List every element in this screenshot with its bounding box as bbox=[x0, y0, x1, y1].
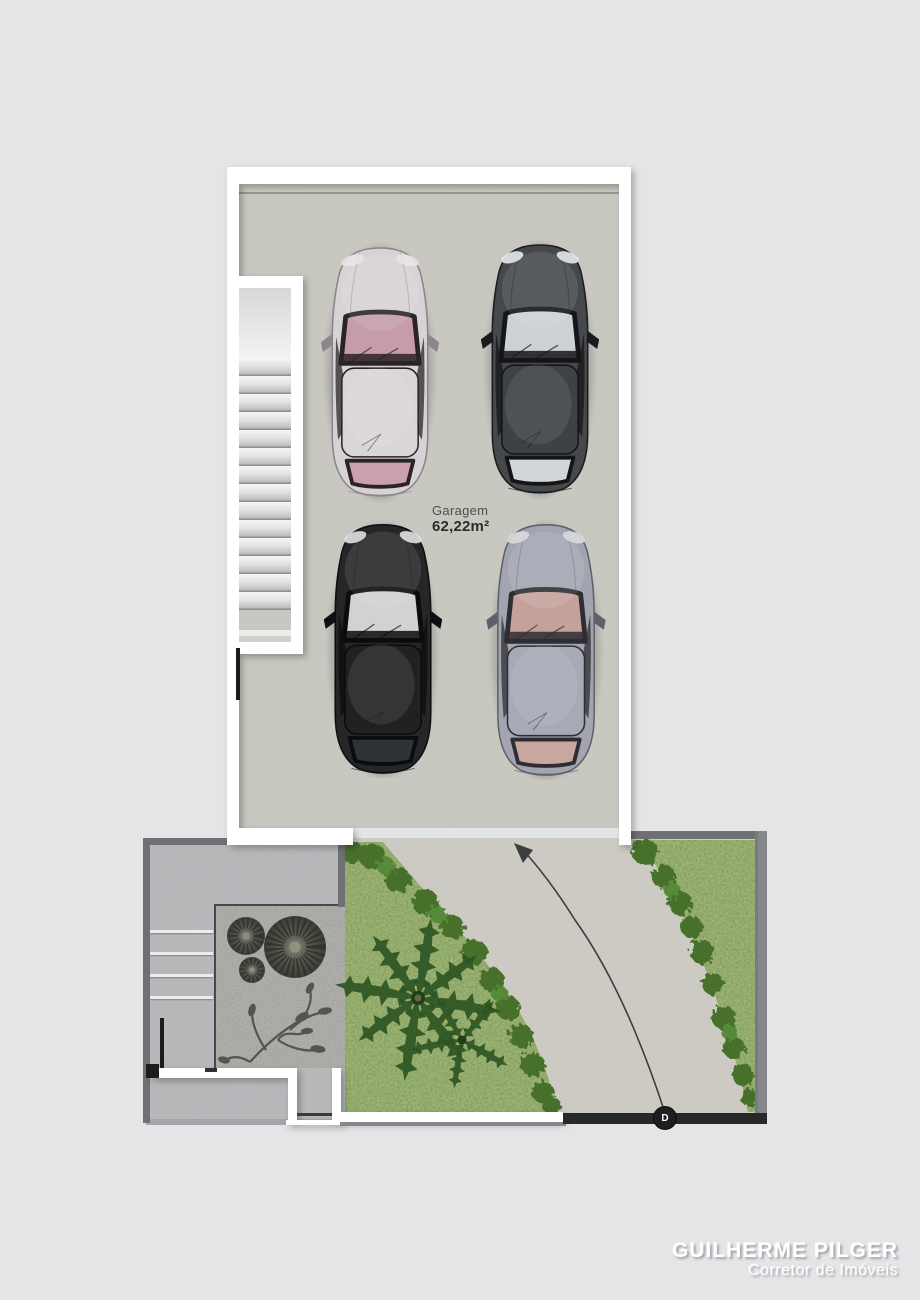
cactus-medium bbox=[227, 917, 265, 955]
cactus-large bbox=[264, 916, 326, 978]
car-black-hatchback bbox=[324, 523, 442, 777]
garage-room-name: Garagem bbox=[432, 503, 488, 518]
stair-landing-top bbox=[239, 288, 291, 358]
floor-plan-drawing: D bbox=[0, 0, 920, 1300]
gate-marker-label: D bbox=[661, 1113, 668, 1124]
car-silver-sedan bbox=[321, 246, 439, 500]
stair-treads bbox=[239, 358, 291, 610]
gate-marker: D bbox=[654, 1107, 677, 1130]
garage-area-value: 62,22m² bbox=[432, 519, 489, 535]
wall-shadow-line bbox=[340, 1122, 566, 1126]
stairs bbox=[239, 288, 291, 642]
floor-plan-page: D Garagem 62,22m² GUILHERME PILGER Corre… bbox=[0, 0, 920, 1300]
cactus-small bbox=[239, 957, 265, 983]
car-dark-coupe bbox=[481, 243, 599, 497]
garage-inner-wall-line bbox=[239, 192, 619, 194]
realtor-role: Corretor de Imóveis bbox=[672, 1263, 898, 1280]
car-gray-sedan bbox=[486, 523, 605, 779]
garage-room-label: Garagem 62,22m² bbox=[432, 504, 489, 534]
stair-landing-bottom bbox=[239, 610, 291, 630]
realtor-name: GUILHERME PILGER bbox=[672, 1240, 898, 1262]
realtor-watermark: GUILHERME PILGER Corretor de Imóveis bbox=[672, 1240, 898, 1280]
